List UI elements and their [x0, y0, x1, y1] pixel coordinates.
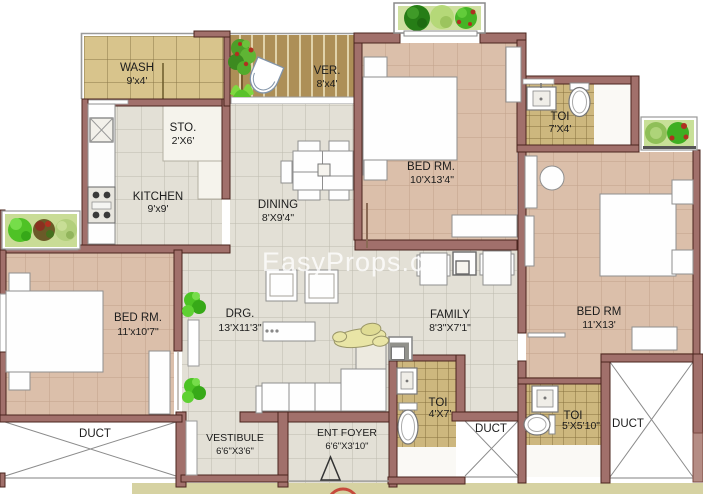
- svg-text:BED RM.: BED RM.: [114, 312, 162, 324]
- svg-text:6'6"X3'10": 6'6"X3'10": [325, 441, 368, 452]
- svg-text:DRG.: DRG.: [226, 308, 255, 320]
- svg-text:FAMILY: FAMILY: [430, 309, 470, 321]
- svg-text:7'X4': 7'X4': [549, 123, 572, 135]
- svg-text:DINING: DINING: [258, 199, 298, 211]
- svg-text:9'x9': 9'x9': [148, 203, 169, 215]
- svg-text:DUCT: DUCT: [79, 428, 111, 440]
- svg-text:STO.: STO.: [170, 122, 197, 134]
- svg-text:DUCT: DUCT: [612, 418, 644, 430]
- svg-text:WASH: WASH: [120, 62, 154, 74]
- svg-text:13'X11'3": 13'X11'3": [218, 322, 261, 334]
- svg-text:10'X13'4": 10'X13'4": [410, 174, 454, 186]
- svg-text:2'X6': 2'X6': [172, 135, 195, 147]
- svg-text:VER.: VER.: [314, 65, 341, 77]
- svg-text:5'X5'10": 5'X5'10": [562, 420, 600, 432]
- svg-text:8'x4': 8'x4': [317, 78, 338, 90]
- svg-text:TOI: TOI: [551, 111, 570, 123]
- svg-text:8'X9'4": 8'X9'4": [262, 212, 295, 224]
- svg-text:EasyProps.co: EasyProps.co: [262, 247, 441, 277]
- svg-text:11'x10'7": 11'x10'7": [117, 326, 159, 338]
- svg-text:BED RM: BED RM: [577, 306, 622, 318]
- svg-text:DUCT: DUCT: [475, 423, 507, 435]
- svg-text:BED RM.: BED RM.: [407, 161, 455, 173]
- svg-text:ENT FOYER: ENT FOYER: [317, 427, 377, 439]
- svg-text:VESTIBULE: VESTIBULE: [206, 432, 264, 444]
- svg-text:6'6"X3'6": 6'6"X3'6": [216, 446, 254, 457]
- svg-text:9'x4': 9'x4': [127, 75, 148, 87]
- svg-text:8'3"X7'1": 8'3"X7'1": [429, 322, 471, 334]
- svg-text:KITCHEN: KITCHEN: [133, 191, 183, 203]
- svg-text:11'X13': 11'X13': [582, 319, 616, 331]
- svg-text:4'X7': 4'X7': [429, 408, 452, 420]
